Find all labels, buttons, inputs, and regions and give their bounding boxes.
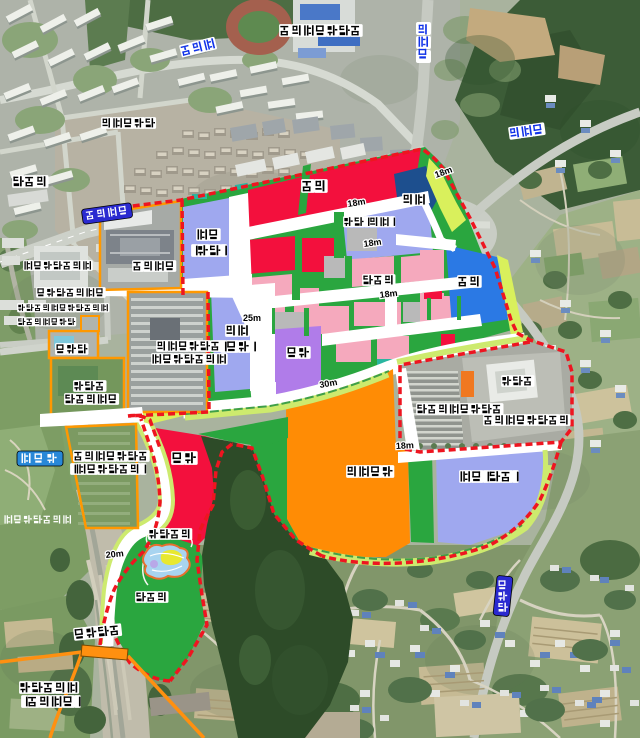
svg-text:25m: 25m [243,313,261,323]
svg-text:20m: 20m [105,548,124,560]
svg-text:18m: 18m [396,440,415,451]
